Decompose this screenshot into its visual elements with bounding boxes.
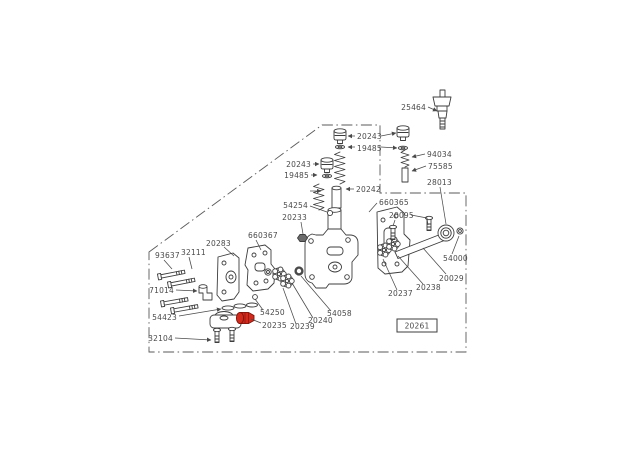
reference-box: 20261 bbox=[397, 319, 437, 332]
part-label-20237[interactable]: 20237 bbox=[388, 289, 413, 298]
part-label-28013[interactable]: 28013 bbox=[427, 178, 452, 187]
part-label-54254[interactable]: 54254 bbox=[283, 201, 308, 210]
part-label-20242[interactable]: 20242 bbox=[356, 185, 381, 194]
part-label-19485[interactable]: 19485 bbox=[284, 171, 309, 180]
plunger-part bbox=[332, 188, 341, 208]
plug-part bbox=[298, 235, 308, 242]
part-label-54000[interactable]: 54000 bbox=[443, 254, 468, 263]
part-label-54058[interactable]: 54058 bbox=[327, 309, 352, 318]
drive-gear-part bbox=[438, 225, 463, 241]
part-label-20238[interactable]: 20238 bbox=[416, 283, 441, 292]
part-label-94034[interactable]: 94034 bbox=[427, 150, 452, 159]
part-label-32104[interactable]: 32104 bbox=[148, 334, 173, 343]
part-label-20235[interactable]: 20235 bbox=[262, 321, 287, 330]
part-label-20095[interactable]: 20095 bbox=[389, 211, 414, 220]
part-label-71014[interactable]: 71014 bbox=[149, 286, 174, 295]
valve-pin-part bbox=[402, 168, 408, 182]
part-label-75585[interactable]: 75585 bbox=[428, 162, 453, 171]
part-label-20029[interactable]: 20029 bbox=[439, 274, 464, 283]
part-label-20233[interactable]: 20233 bbox=[282, 213, 307, 222]
assembly-reference-label: 20261 bbox=[405, 322, 430, 331]
pump-housing-part bbox=[305, 208, 358, 288]
elbow-fitting-part bbox=[199, 287, 212, 300]
part-label-19485-top[interactable]: 19485 bbox=[357, 144, 382, 153]
part-label-660367[interactable]: 660367 bbox=[248, 231, 278, 240]
highlighted-part-20235[interactable] bbox=[236, 312, 254, 323]
ball-part bbox=[327, 210, 332, 215]
part-label-20283[interactable]: 20283 bbox=[206, 239, 231, 248]
parts-diagram-page: 25464 20243 19485 20243 19485 94034 7558… bbox=[0, 0, 620, 465]
part-label-660365[interactable]: 660365 bbox=[379, 198, 409, 207]
part-label-32111[interactable]: 32111 bbox=[181, 248, 206, 257]
part-label-20243-top[interactable]: 20243 bbox=[357, 132, 382, 141]
part-label-20243[interactable]: 20243 bbox=[286, 160, 311, 169]
part-label-54423[interactable]: 54423 bbox=[152, 313, 177, 322]
part-label-93637[interactable]: 93637 bbox=[155, 251, 180, 260]
leader-lines bbox=[164, 107, 459, 340]
part-label-25464[interactable]: 25464 bbox=[401, 103, 426, 112]
parts-diagram-canvas: 25464 20243 19485 20243 19485 94034 7558… bbox=[0, 0, 620, 465]
part-label-54250[interactable]: 54250 bbox=[260, 308, 285, 317]
oil-sensor-part bbox=[433, 90, 451, 129]
